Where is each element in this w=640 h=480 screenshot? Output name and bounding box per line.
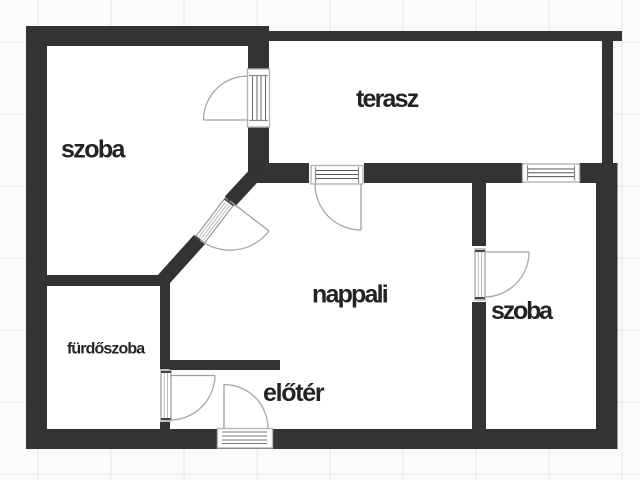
svg-text:előtér: előtér <box>263 379 325 407</box>
svg-text:nappali: nappali <box>312 281 388 309</box>
svg-text:terasz: terasz <box>356 85 419 113</box>
svg-text:szoba: szoba <box>491 297 554 325</box>
svg-text:fürdőszoba: fürdőszoba <box>67 341 145 358</box>
svg-text:szoba: szoba <box>61 136 127 164</box>
